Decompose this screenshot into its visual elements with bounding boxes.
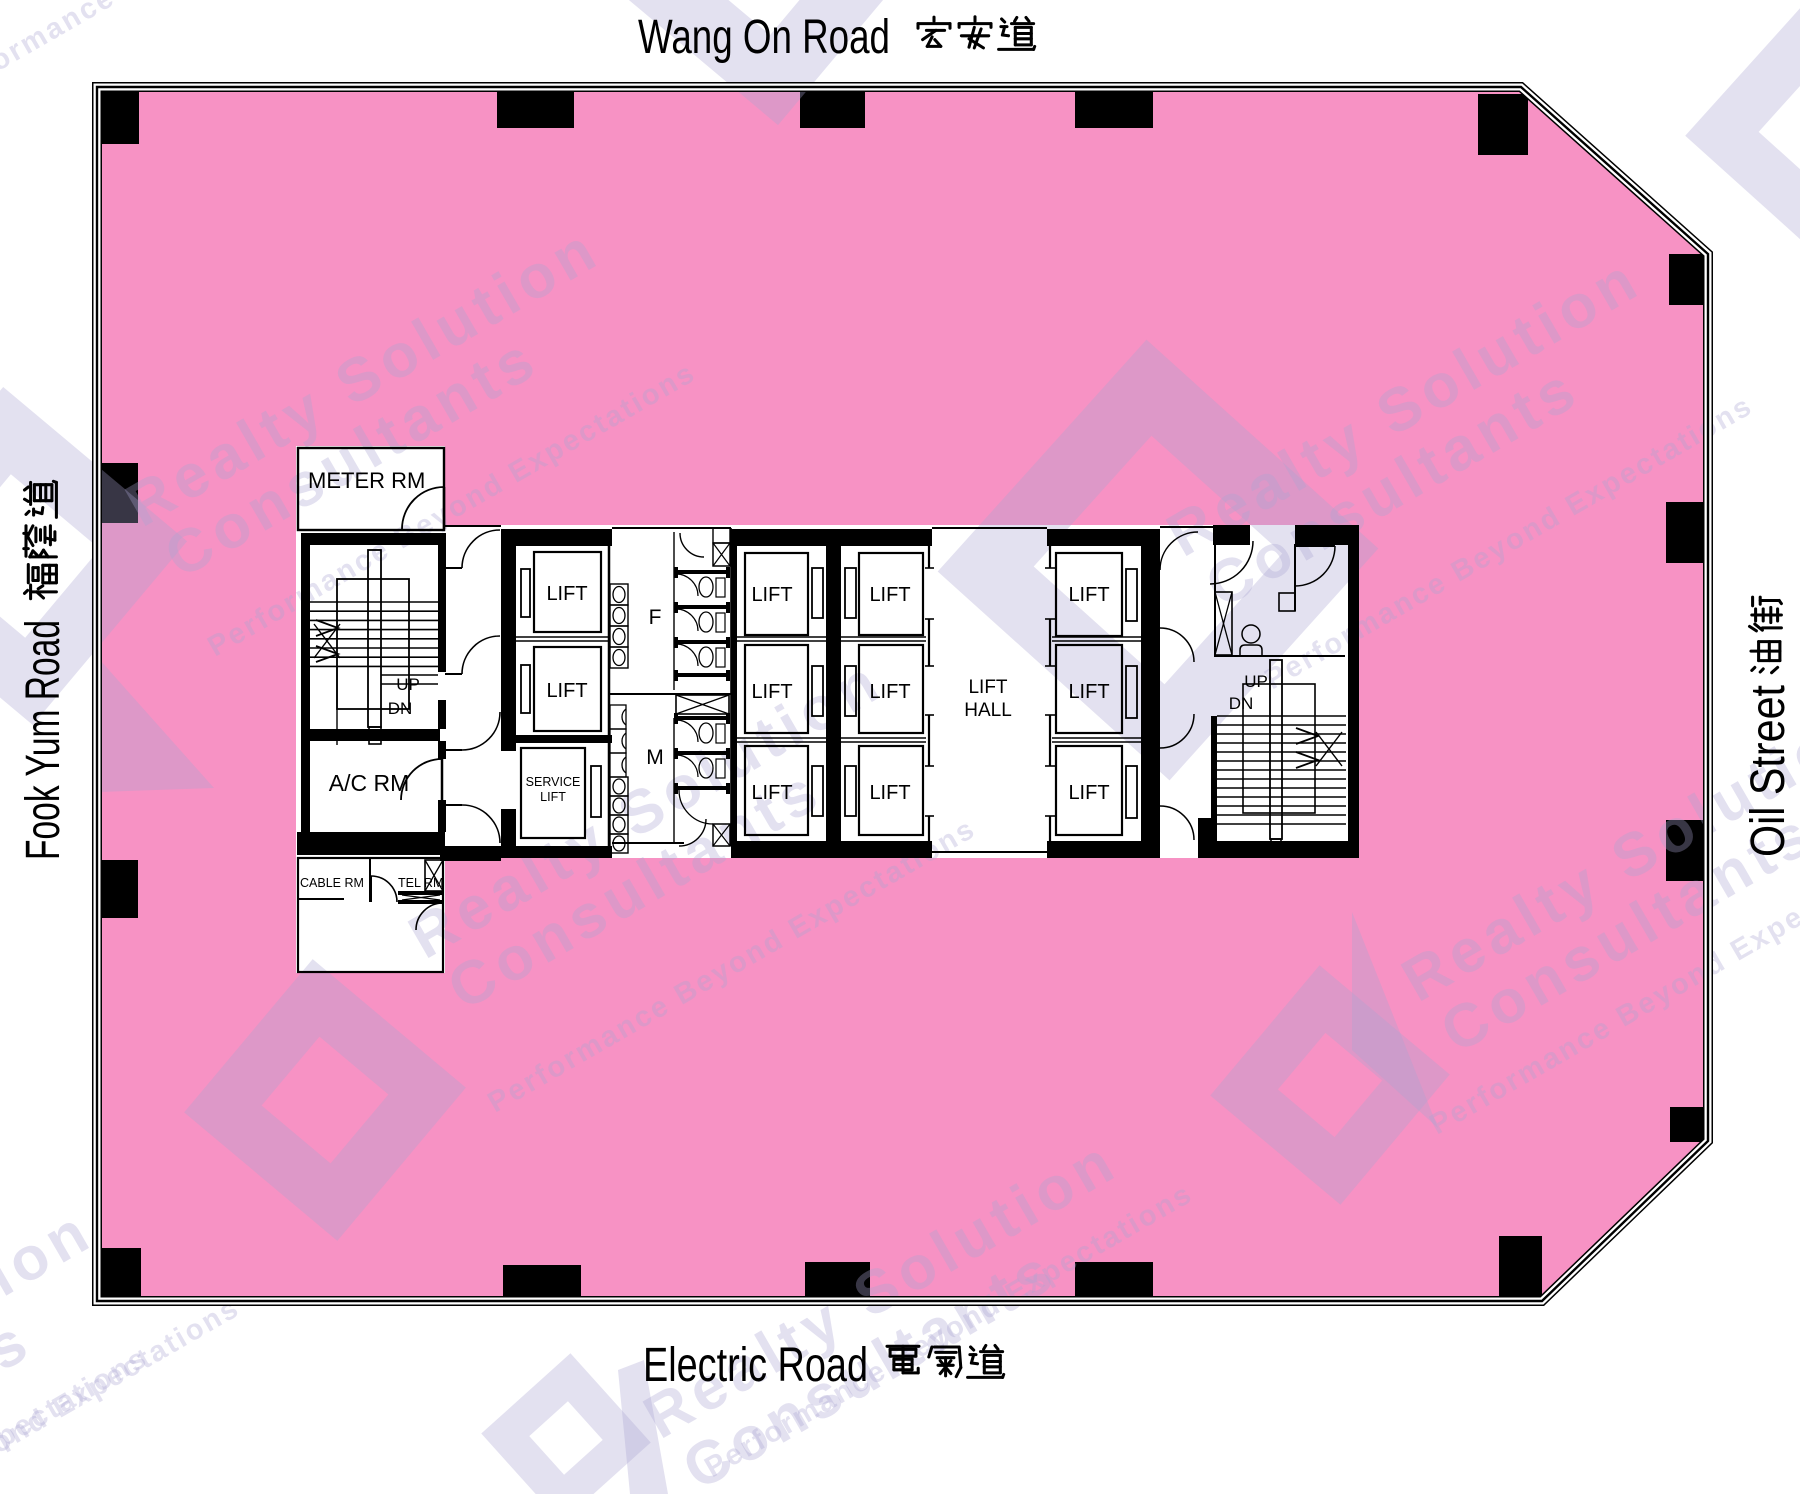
svg-text:METER RM: METER RM	[308, 468, 425, 493]
svg-text:LIFT: LIFT	[1068, 681, 1109, 703]
svg-text:LIFT: LIFT	[869, 681, 910, 703]
svg-text:LIFT: LIFT	[869, 782, 910, 804]
svg-text:LIFT: LIFT	[751, 782, 792, 804]
svg-text:LIFT: LIFT	[1068, 584, 1109, 606]
svg-text:LIFT: LIFT	[968, 677, 1007, 698]
svg-text:UP: UP	[1244, 672, 1268, 691]
svg-text:UP: UP	[396, 675, 420, 694]
svg-text:CABLE RM: CABLE RM	[300, 876, 364, 890]
svg-text:HALL: HALL	[964, 700, 1012, 721]
svg-text:Electric Road: Electric Road	[643, 1339, 868, 1392]
svg-text:LIFT: LIFT	[540, 790, 566, 804]
svg-text:LIFT: LIFT	[869, 584, 910, 606]
svg-text:SERVICE: SERVICE	[526, 775, 581, 789]
svg-text:DN: DN	[1229, 694, 1254, 713]
svg-text:F: F	[649, 606, 662, 629]
svg-text:TEL RM: TEL RM	[398, 876, 443, 890]
svg-text:Oil Street: Oil Street	[1742, 685, 1795, 857]
svg-text:LIFT: LIFT	[546, 583, 587, 605]
svg-text:M: M	[646, 746, 664, 769]
svg-text:LIFT: LIFT	[1068, 782, 1109, 804]
svg-text:A/C RM: A/C RM	[329, 770, 410, 796]
svg-text:LIFT: LIFT	[751, 584, 792, 606]
svg-text:DN: DN	[388, 699, 413, 718]
svg-text:LIFT: LIFT	[546, 680, 587, 702]
svg-text:Fook Yum Road: Fook Yum Road	[17, 620, 70, 860]
svg-text:Wang On Road: Wang On Road	[638, 11, 890, 64]
svg-text:LIFT: LIFT	[751, 681, 792, 703]
